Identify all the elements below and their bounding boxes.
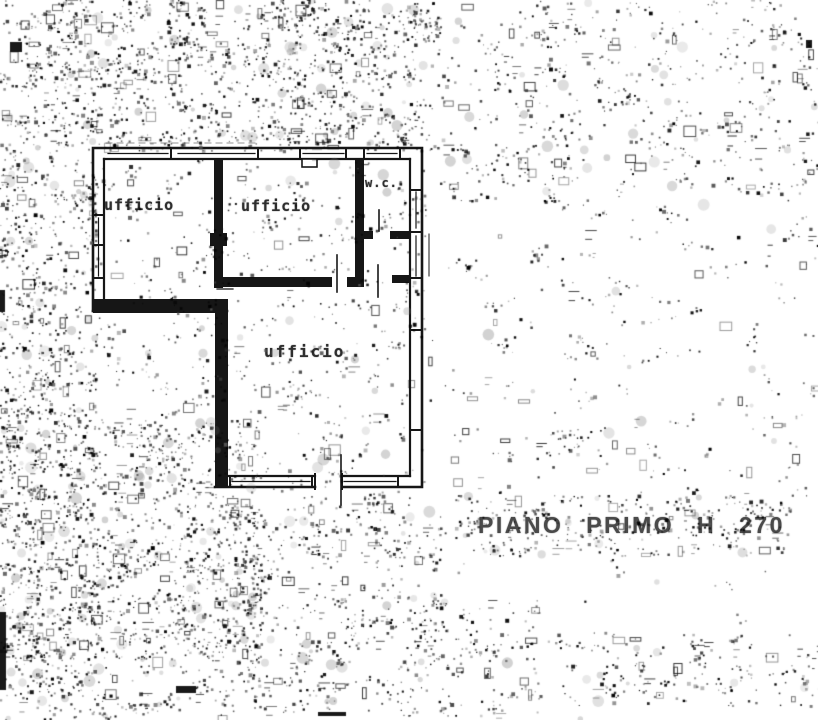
wc-partition-right <box>390 231 411 239</box>
floor-caption: PIANO PRIMO H 270 <box>478 512 785 539</box>
room-label-office-mid: ufficio <box>241 197 311 215</box>
office-divider-wall <box>214 158 223 288</box>
room-label-wc: w.c. <box>365 176 398 190</box>
scanned-floorplan-page: ufficio ufficio ufficio w.c. PIANO PRIMO… <box>0 0 818 720</box>
door-jambs-bottom <box>315 474 342 489</box>
wing-bottom-wall <box>93 299 227 313</box>
floor-plan-drawing <box>0 0 818 720</box>
room-label-office-lower: ufficio <box>264 342 345 361</box>
room-label-office-left: ufficio <box>104 196 174 214</box>
lower-left-wall <box>215 299 228 488</box>
mid-horizontal-wall <box>214 277 332 287</box>
anteroom-stub <box>392 275 411 283</box>
roller-box-notch <box>302 159 317 167</box>
divider-pillar <box>210 233 227 246</box>
wc-partition-left <box>359 231 373 239</box>
wc-left-wall <box>355 158 364 287</box>
